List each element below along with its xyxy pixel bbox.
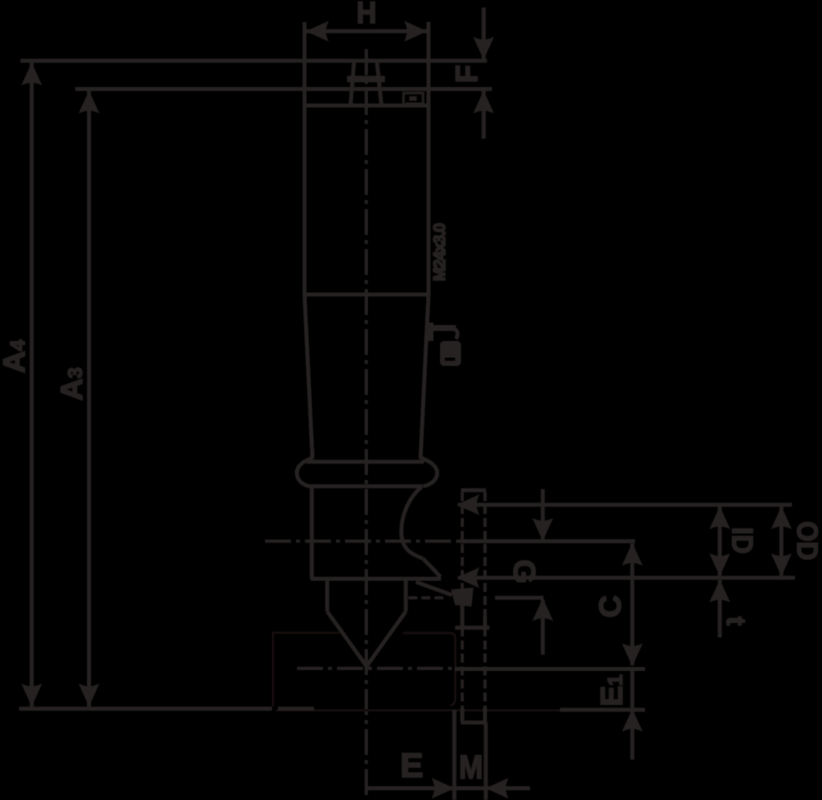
svg-text:E: E: [400, 747, 423, 785]
svg-text:t: t: [721, 617, 751, 626]
svg-text:H: H: [357, 0, 377, 30]
svg-text:OD: OD: [791, 521, 822, 560]
svg-text:F: F: [449, 65, 484, 83]
svg-text:C: C: [592, 595, 627, 617]
svg-text:G: G: [507, 559, 542, 583]
svg-text:M: M: [459, 748, 483, 785]
svg-text:M24x3.0: M24x3.0: [431, 223, 449, 281]
svg-text:ID: ID: [726, 527, 758, 554]
